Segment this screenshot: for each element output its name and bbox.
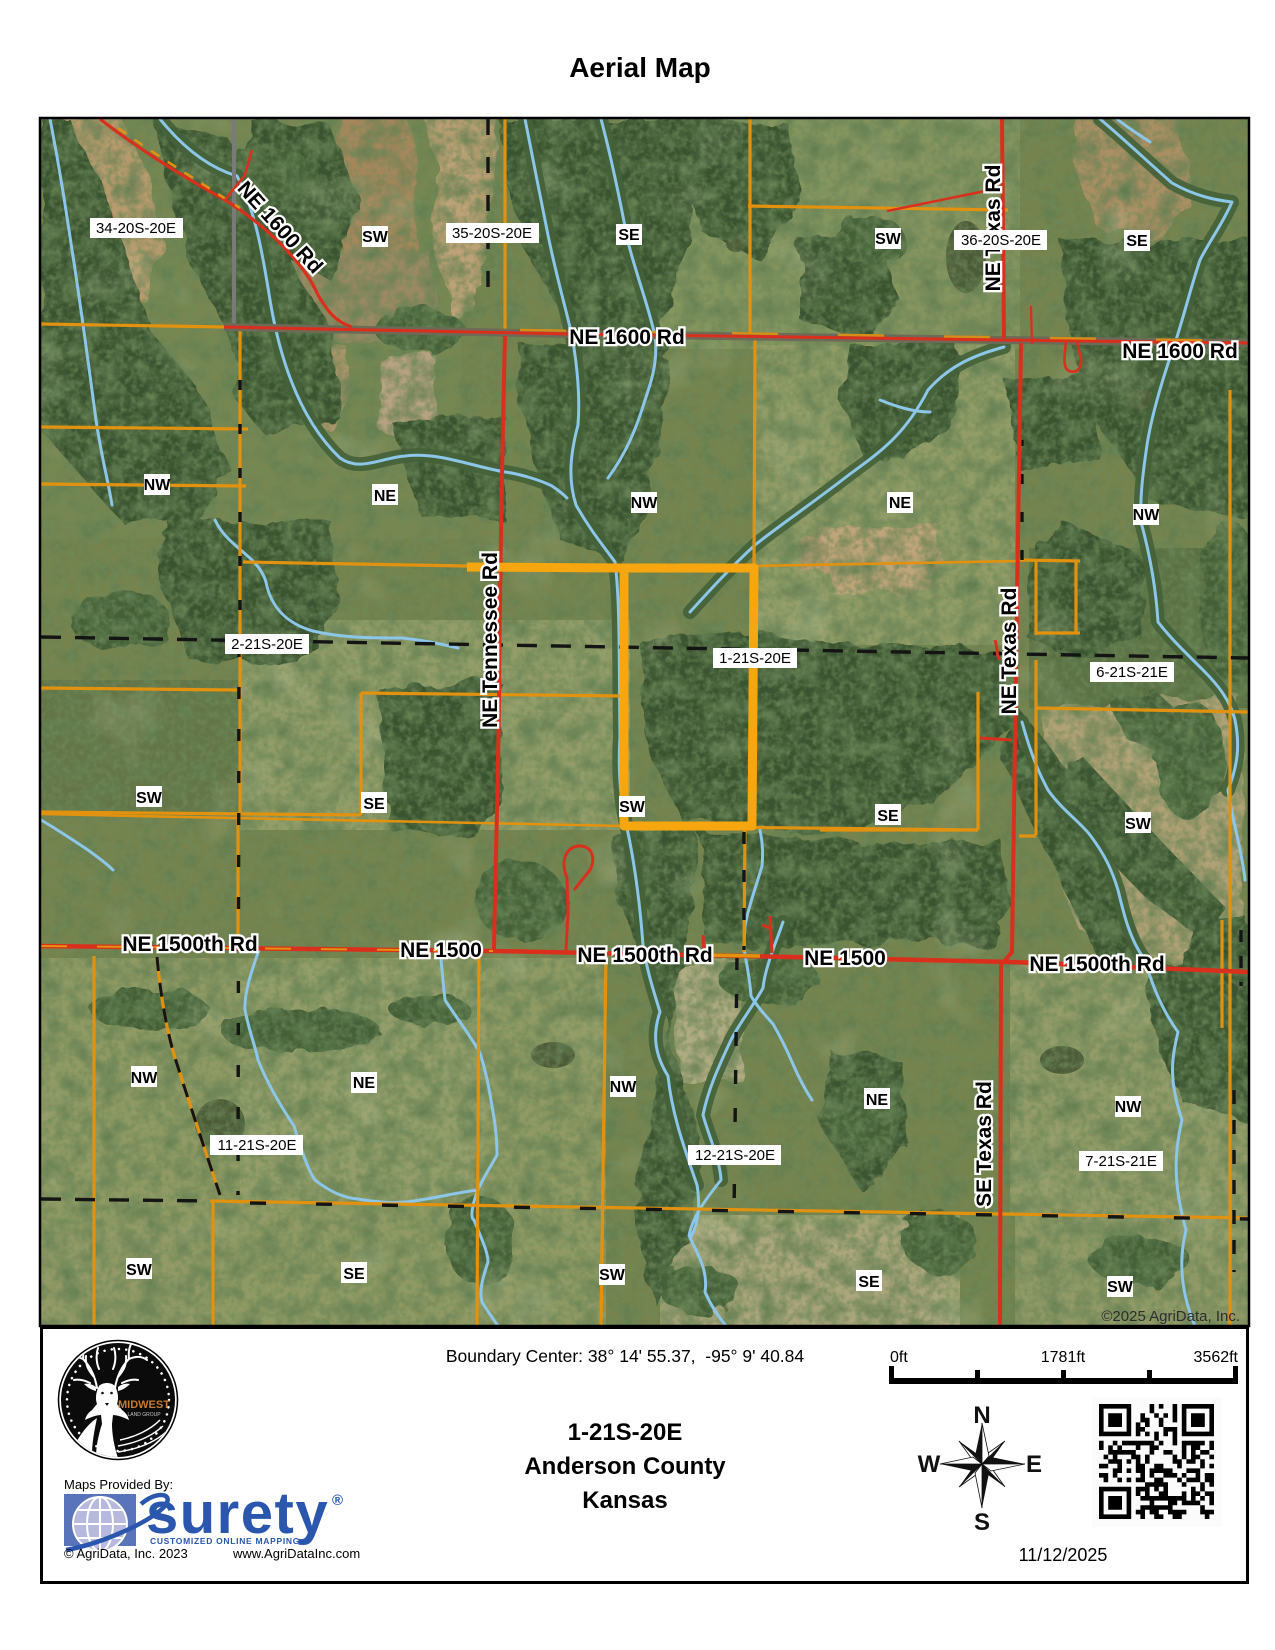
svg-text:SE Texas Rd: SE Texas Rd [973, 1081, 996, 1207]
svg-text:11-21S-20E: 11-21S-20E [218, 1137, 297, 1154]
svg-text:2-21S-20E: 2-21S-20E [231, 636, 303, 653]
svg-text:NW: NW [1133, 507, 1161, 524]
svg-text:35-20S-20E: 35-20S-20E [452, 225, 532, 242]
svg-text:CUSTOMIZED ONLINE MAPPING: CUSTOMIZED ONLINE MAPPING [150, 1536, 300, 1546]
svg-text:Anderson County: Anderson County [524, 1453, 726, 1480]
svg-text:Kansas: Kansas [582, 1487, 667, 1514]
svg-text:1781ft: 1781ft [1041, 1349, 1086, 1366]
svg-text:7-21S-21E: 7-21S-21E [1085, 1153, 1157, 1170]
svg-text:NW: NW [131, 1070, 159, 1087]
svg-text:NE 1500th Rd: NE 1500th Rd [577, 944, 712, 967]
svg-text:NE: NE [889, 495, 912, 512]
svg-text:Aerial Map: Aerial Map [569, 52, 711, 83]
svg-text:34-20S-20E: 34-20S-20E [96, 220, 176, 237]
svg-text:N: N [973, 1402, 990, 1429]
svg-text:© AgriData, Inc. 2023: © AgriData, Inc. 2023 [64, 1546, 188, 1561]
svg-text:SW: SW [1125, 816, 1152, 833]
svg-text:SE: SE [858, 1274, 880, 1291]
svg-text:www.AgriDataInc.com: www.AgriDataInc.com [232, 1546, 360, 1561]
svg-text:0ft: 0ft [890, 1349, 908, 1366]
svg-text:®: ® [332, 1492, 343, 1509]
svg-text:NE 1600 Rd: NE 1600 Rd [569, 326, 685, 349]
svg-text:NE 1500: NE 1500 [804, 947, 886, 970]
svg-text:NE: NE [866, 1092, 889, 1109]
svg-text:LAND GROUP: LAND GROUP [127, 1412, 161, 1418]
svg-text:36-20S-20E: 36-20S-20E [961, 232, 1041, 249]
svg-text:SW: SW [362, 229, 389, 246]
svg-text:NE 1500th Rd: NE 1500th Rd [1029, 953, 1164, 976]
svg-text:NE Texas Rd: NE Texas Rd [998, 588, 1021, 715]
svg-text:MIDWEST: MIDWEST [118, 1399, 170, 1411]
svg-text:©2025 AgriData, Inc.: ©2025 AgriData, Inc. [1101, 1308, 1240, 1325]
svg-text:NW: NW [1115, 1099, 1143, 1116]
svg-text:1-21S-20E: 1-21S-20E [568, 1419, 683, 1446]
svg-text:NW: NW [610, 1079, 638, 1096]
svg-text:SW: SW [599, 1267, 626, 1284]
svg-text:SW: SW [1107, 1279, 1134, 1296]
svg-text:E: E [1026, 1451, 1042, 1478]
svg-text:NE Texas Rd: NE Texas Rd [982, 165, 1005, 292]
svg-text:3562ft: 3562ft [1194, 1349, 1239, 1366]
svg-text:SW: SW [875, 231, 902, 248]
svg-text:12-21S-20E: 12-21S-20E [695, 1147, 775, 1164]
svg-text:SW: SW [136, 790, 163, 807]
svg-text:W: W [918, 1451, 941, 1478]
svg-text:NW: NW [144, 477, 172, 494]
svg-text:NE 1500: NE 1500 [400, 939, 482, 962]
svg-text:SE: SE [363, 796, 385, 813]
svg-text:S: S [974, 1509, 990, 1536]
svg-text:NE Tennessee Rd: NE Tennessee Rd [479, 552, 502, 728]
svg-text:11/12/2025: 11/12/2025 [1019, 1545, 1108, 1565]
svg-text:SE: SE [1126, 233, 1148, 250]
svg-text:NE: NE [374, 488, 397, 505]
svg-text:SW: SW [619, 799, 646, 816]
svg-text:NW: NW [631, 495, 659, 512]
svg-text:SE: SE [343, 1266, 365, 1283]
svg-text:NE 1500th Rd: NE 1500th Rd [122, 933, 257, 956]
svg-text:1-21S-20E: 1-21S-20E [719, 650, 791, 667]
svg-text:NE: NE [353, 1075, 376, 1092]
svg-text:6-21S-21E: 6-21S-21E [1096, 664, 1168, 681]
svg-text:SE: SE [877, 808, 899, 825]
svg-text:SW: SW [126, 1262, 153, 1279]
svg-text:NE 1600 Rd: NE 1600 Rd [1122, 340, 1238, 363]
svg-text:Boundary Center: 38° 14' 55.37: Boundary Center: 38° 14' 55.37, -95° 9' … [446, 1346, 805, 1366]
svg-text:SE: SE [618, 227, 640, 244]
